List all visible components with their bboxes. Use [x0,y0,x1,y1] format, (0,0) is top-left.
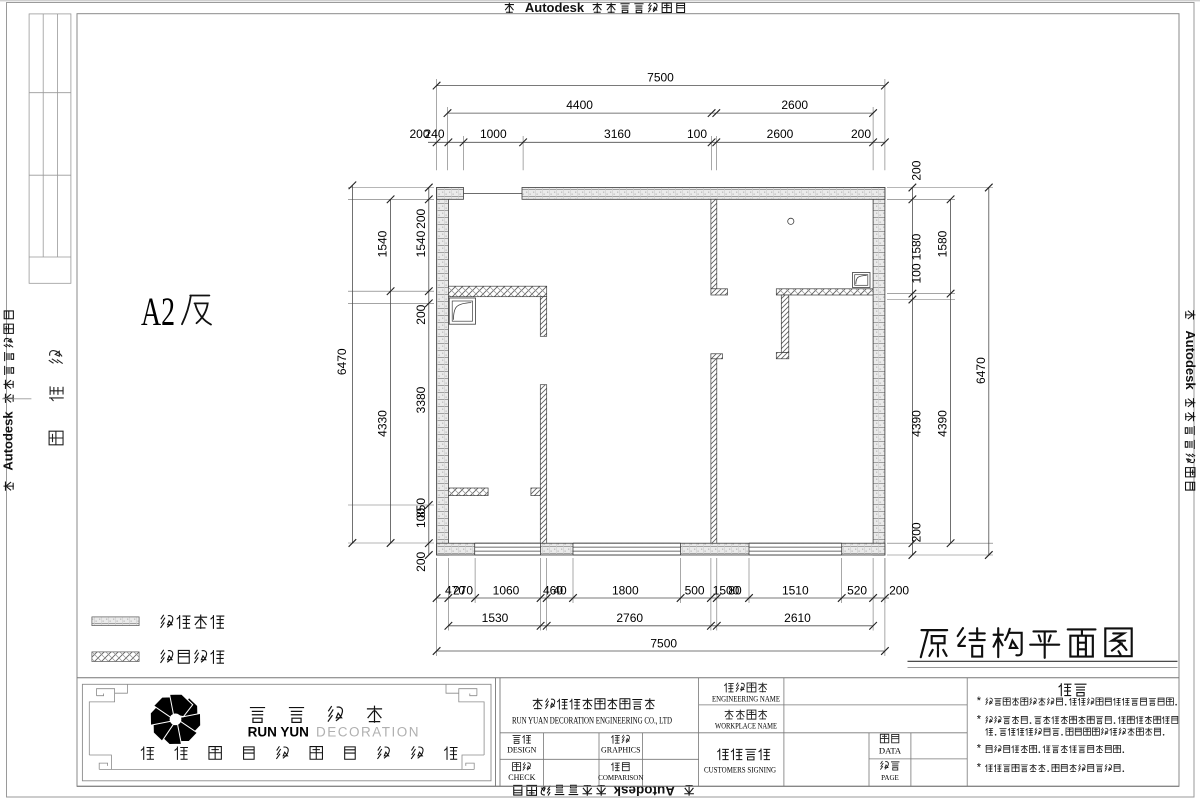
svg-text:2600: 2600 [781,98,808,112]
svg-text:COMPARISON: COMPARISON [598,774,643,782]
svg-text:3380: 3380 [414,386,428,413]
svg-text:200: 200 [414,551,428,571]
svg-text:WORKPLACE NAME: WORKPLACE NAME [715,721,777,731]
svg-text:RUN YUN: RUN YUN [248,725,309,740]
svg-text:1510: 1510 [782,583,809,597]
svg-text:*: * [977,762,982,774]
svg-text:Autodesk: Autodesk [525,0,585,15]
svg-text:200: 200 [910,522,924,542]
svg-text:1580: 1580 [910,233,924,260]
svg-text:100: 100 [687,127,707,141]
svg-text:200: 200 [889,583,909,597]
svg-text:*: * [977,714,982,726]
svg-text:100: 100 [414,508,428,528]
svg-text:7500: 7500 [650,636,677,650]
svg-text:80: 80 [728,583,742,597]
svg-text:DECORATION: DECORATION [316,725,420,740]
svg-text:4390: 4390 [936,410,950,437]
svg-text:DESIGN: DESIGN [507,746,537,755]
svg-text:4400: 4400 [566,98,593,112]
svg-text:40: 40 [553,583,567,597]
svg-text:2760: 2760 [616,611,643,625]
svg-text:100: 100 [910,263,924,283]
svg-text:RUN YUAN DECORATION ENGINEERIN: RUN YUAN DECORATION ENGINEERING CO., LTD [512,716,672,726]
svg-text:CHECK: CHECK [508,773,535,782]
svg-text:240: 240 [424,127,444,141]
svg-text:Autodesk: Autodesk [1183,330,1198,390]
svg-text:6470: 6470 [335,348,349,375]
svg-text:1540: 1540 [376,230,390,257]
svg-text:A2: A2 [141,289,175,334]
svg-text:1540: 1540 [414,230,428,257]
svg-text:GRAPHICS: GRAPHICS [601,746,641,755]
svg-text:1800: 1800 [612,583,639,597]
svg-text:ENGINEERING NAME: ENGINEERING NAME [712,694,780,704]
svg-text:200: 200 [910,160,924,180]
svg-text:520: 520 [847,583,867,597]
svg-text:2600: 2600 [767,127,794,141]
svg-text:CUSTOMERS SIGNING: CUSTOMERS SIGNING [704,765,777,775]
svg-text:DATA: DATA [879,746,902,756]
svg-text:PAGE: PAGE [881,774,899,782]
svg-text:2610: 2610 [784,611,811,625]
svg-text:4330: 4330 [376,410,390,437]
svg-text:*: * [977,743,982,755]
svg-text:200: 200 [414,304,428,324]
svg-text:200: 200 [851,127,871,141]
svg-text:200: 200 [414,208,428,228]
svg-text:Autodesk: Autodesk [613,783,675,798]
svg-text:6470: 6470 [974,357,988,384]
svg-text:Autodesk: Autodesk [1,411,16,471]
svg-text:270: 270 [453,583,473,597]
svg-text:3160: 3160 [604,127,631,141]
svg-text:*: * [977,695,982,707]
svg-text:4390: 4390 [910,410,924,437]
svg-text:7500: 7500 [647,71,674,85]
svg-text:1060: 1060 [493,583,520,597]
svg-text:1000: 1000 [480,127,507,141]
svg-text:1530: 1530 [482,611,509,625]
svg-text:1580: 1580 [936,230,950,257]
svg-text:500: 500 [685,583,705,597]
